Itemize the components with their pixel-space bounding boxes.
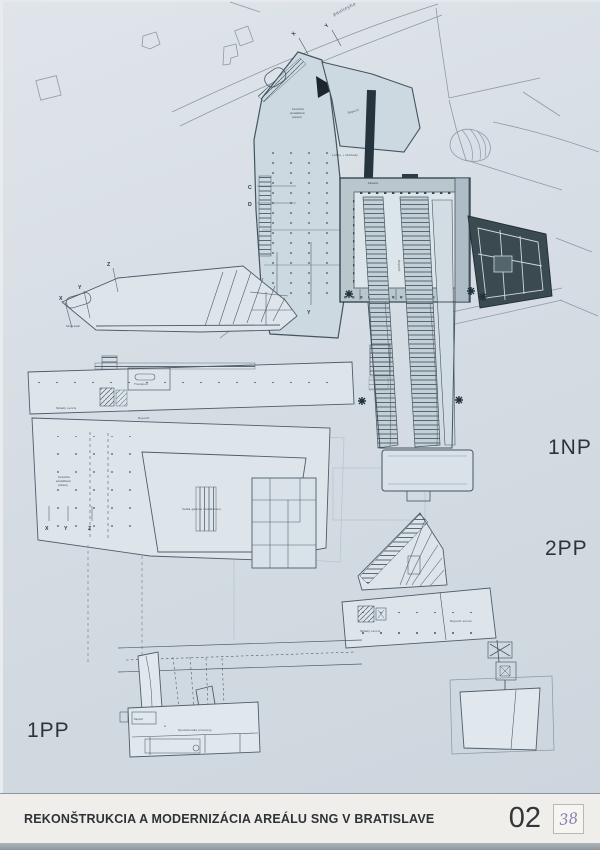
left-top-marker-y: Y [78,285,82,291]
room-label-depozit-left: Depozit [138,416,150,420]
floor-label-1np: 1NP [548,436,592,460]
room-label-komercne-left-3: priestory [58,483,69,487]
room-label-sklady-left: Sklady servis [56,406,77,410]
room-label-komercne-1: Komerčné [292,107,304,111]
section-marker-c: C [248,185,252,191]
street-name-label: paulinyho [332,1,357,17]
left-top-marker-x: X [59,296,63,302]
room-label-depozit-mid: Depozit [397,260,401,272]
room-label-spolocenske: Spoločenské priestory [178,728,212,732]
site-plan-drawing: paulinyho X Y [0,0,600,850]
handwritten-number-box: 38 [553,804,584,834]
room-label-depozit-1pp: Depozit [134,717,143,721]
handwritten-number: 38 [558,809,579,829]
room-label-komercne-3: priestory [292,115,303,119]
section-marker-d: D [248,202,252,208]
left-bottom-marker-y: Y [64,526,68,532]
section-marker-bottom-y: Y [307,310,311,316]
room-label-velka-galeria: Veľká galéria / auditórium [182,507,221,511]
left-bottom-marker-x: X [45,526,49,532]
bottom-plan-1pp: Depozit A Spoločenské priestory [118,640,362,757]
room-label-komercne-left-1: Komerčné [58,475,70,479]
sheet-number: 02 [509,802,541,835]
right-plan-2pp: Sklady servis Depozit servis [342,513,554,754]
room-label-komercne-left-2: prevádzkové [56,479,71,483]
room-label-komercne-2: prevádzkové [290,111,305,115]
street-marker-y: Y [324,22,331,29]
page-title: REKONŠTRUKCIA A MODERNIZÁCIA AREÁLU SNG … [24,812,509,826]
floor-label-2pp: 2PP [545,537,588,561]
presentation-board: paulinyho X Y [0,0,600,850]
room-label-depozit-servis: Depozit servis [450,619,472,623]
floor-label-1pp: 1PP [27,719,70,743]
street-marker-x: X [291,30,298,37]
room-label-kaviaren: Kaviareň [368,181,379,185]
title-bar: REKONŠTRUKCIA A MODERNIZÁCIA AREÁLU SNG … [0,793,600,844]
room-label-expozicie: Expozície [500,300,512,304]
street-section-markers: X Y [291,22,341,54]
room-marker-a: A [164,724,166,728]
room-label-sklady-right: Sklady servis [360,629,381,633]
room-label-servis-areal: Servis areál [66,324,80,328]
room-label-lobby: Lobby + obchody [332,153,358,157]
room-label-transport: Transport [134,382,149,386]
scan-edge-bottom [0,843,600,850]
left-top-marker-z: Z [107,262,111,268]
